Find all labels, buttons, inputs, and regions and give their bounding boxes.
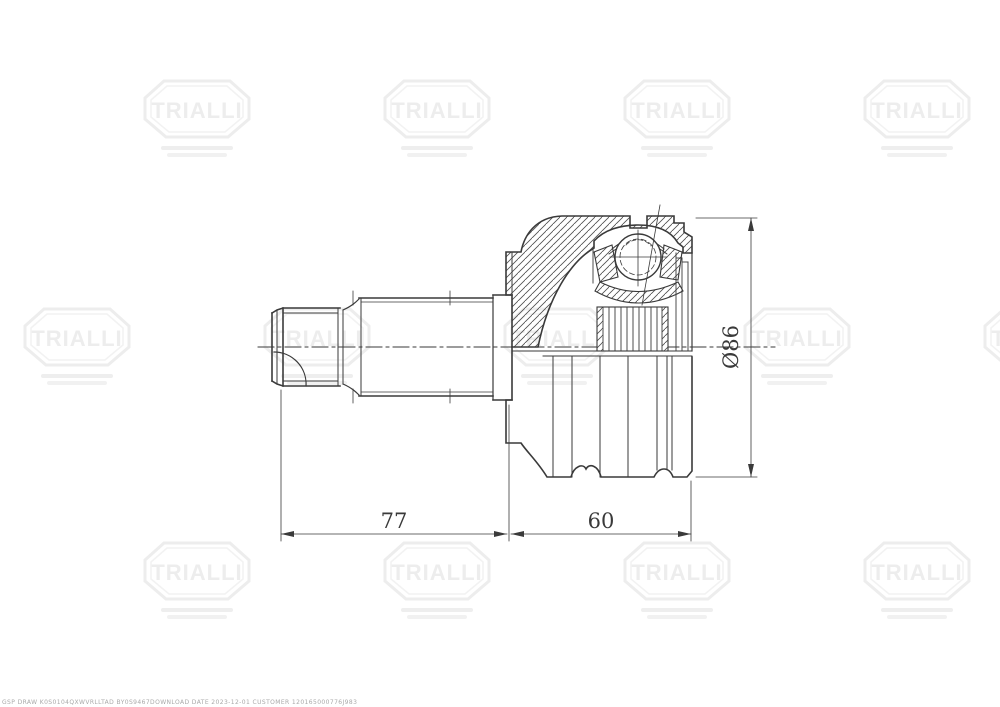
dimension-label-outer-diameter: Ø86 xyxy=(719,325,743,369)
trialli-watermark-logo xyxy=(25,309,129,385)
inner-race-spline-bore xyxy=(597,307,668,351)
trialli-watermark-logo xyxy=(145,81,249,157)
joint-housing-section xyxy=(506,216,692,356)
trialli-watermark-logo xyxy=(745,309,849,385)
footer-watermark-code: GSP DRAW K0S0104QXWVRLLTAD BY0S9467DOWNL… xyxy=(2,699,357,706)
cage-section-right xyxy=(660,245,682,280)
trialli-watermark-logo xyxy=(625,543,729,619)
inner-race-section xyxy=(595,282,683,303)
trialli-watermark-logo xyxy=(385,81,489,157)
trialli-watermark-logo xyxy=(145,543,249,619)
cv-joint-technical-drawing: TRIALLI xyxy=(0,0,1000,707)
trialli-watermark-logo xyxy=(985,309,1000,385)
cv-joint-technical-drawing-page: TRIALLI xyxy=(0,0,1000,707)
trialli-watermark-logo xyxy=(865,543,969,619)
trialli-watermark-logo xyxy=(625,81,729,157)
trialli-watermark-logo xyxy=(385,543,489,619)
dimension-label-shaft-length: 77 xyxy=(381,509,408,533)
trialli-watermark-logo xyxy=(865,81,969,157)
dimension-label-joint-length: 60 xyxy=(588,509,615,533)
